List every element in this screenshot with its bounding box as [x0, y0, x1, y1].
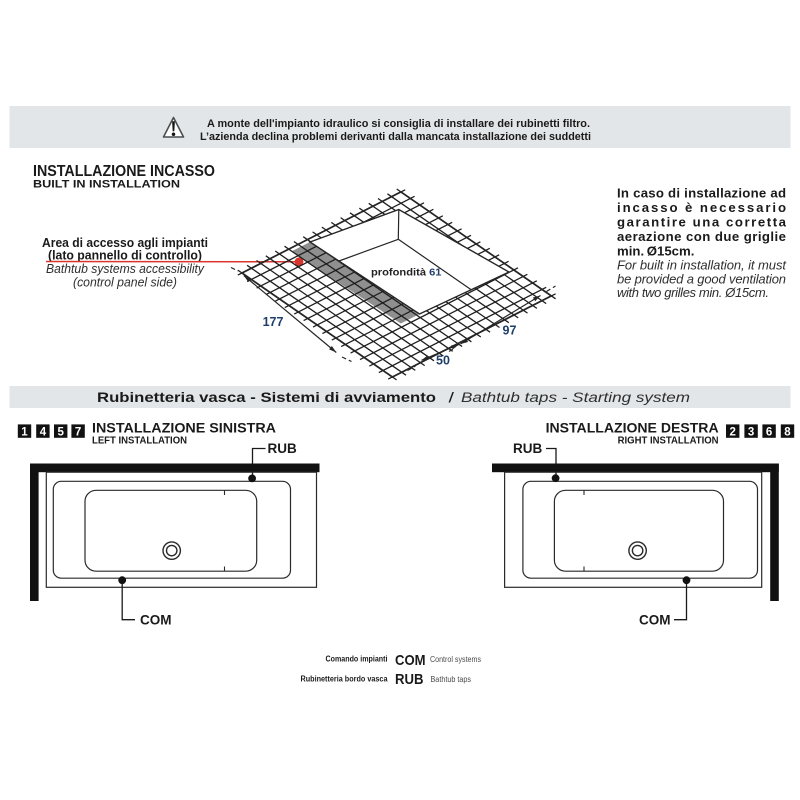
svg-text:incasso è necessario: incasso è necessario — [617, 200, 786, 215]
svg-text:RUB: RUB — [268, 441, 297, 456]
svg-text:Control systems: Control systems — [430, 654, 481, 664]
svg-text:min. Ø15cm.: min. Ø15cm. — [617, 244, 694, 259]
svg-text:COM: COM — [639, 613, 671, 628]
svg-text:RUB: RUB — [513, 441, 542, 456]
svg-text:Bathtub taps: Bathtub taps — [431, 674, 472, 684]
svg-text:2: 2 — [729, 426, 735, 438]
svg-text:RIGHT INSTALLATION: RIGHT INSTALLATION — [618, 436, 719, 447]
svg-text:INSTALLAZIONE SINISTRA: INSTALLAZIONE SINISTRA — [92, 421, 276, 437]
svg-text:Bathtub taps - Starting system: Bathtub taps - Starting system — [461, 390, 690, 405]
svg-text:1: 1 — [21, 426, 28, 438]
svg-text:For built in installation, it: For built in installation, it must — [617, 258, 787, 273]
svg-text:4: 4 — [40, 426, 47, 438]
svg-text:Comando impianti: Comando impianti — [326, 654, 388, 664]
svg-text:with two grilles min. Ø15cm.: with two grilles min. Ø15cm. — [617, 285, 769, 300]
svg-text:LEFT INSTALLATION: LEFT INSTALLATION — [92, 436, 187, 447]
svg-text:177: 177 — [263, 315, 284, 329]
svg-text:INSTALLAZIONE DESTRA: INSTALLAZIONE DESTRA — [546, 421, 719, 437]
svg-text:(control panel side): (control panel side) — [73, 275, 177, 290]
svg-text:50: 50 — [436, 354, 450, 368]
svg-text:BUILT IN INSTALLATION: BUILT IN INSTALLATION — [33, 179, 180, 191]
svg-text:A monte dell'impianto idraulic: A monte dell'impianto idraulico si consi… — [207, 118, 590, 130]
svg-text:In caso di installazione ad: In caso di installazione ad — [617, 186, 786, 201]
svg-text:aerazione con due griglie: aerazione con due griglie — [617, 229, 786, 244]
svg-text:profondità 61: profondità 61 — [371, 267, 442, 279]
svg-text:Rubinetteria vasca - Sistemi d: Rubinetteria vasca - Sistemi di avviamen… — [97, 389, 436, 405]
svg-text:INSTALLAZIONE INCASSO: INSTALLAZIONE INCASSO — [33, 163, 215, 180]
svg-text:RUB: RUB — [395, 671, 424, 688]
svg-text:COM: COM — [140, 613, 172, 628]
svg-text:6: 6 — [766, 426, 772, 438]
svg-text:7: 7 — [75, 426, 81, 438]
svg-text:Rubinetteria bordo vasca: Rubinetteria bordo vasca — [301, 674, 388, 684]
svg-text:garantire una corretta: garantire una corretta — [617, 215, 787, 230]
svg-text:3: 3 — [748, 426, 754, 438]
svg-text:5: 5 — [57, 426, 64, 438]
svg-text:97: 97 — [503, 324, 517, 338]
svg-text:COM: COM — [395, 652, 426, 669]
svg-text:L’azienda declina problemi der: L’azienda declina problemi derivanti dal… — [200, 131, 591, 143]
svg-text:8: 8 — [784, 426, 791, 438]
